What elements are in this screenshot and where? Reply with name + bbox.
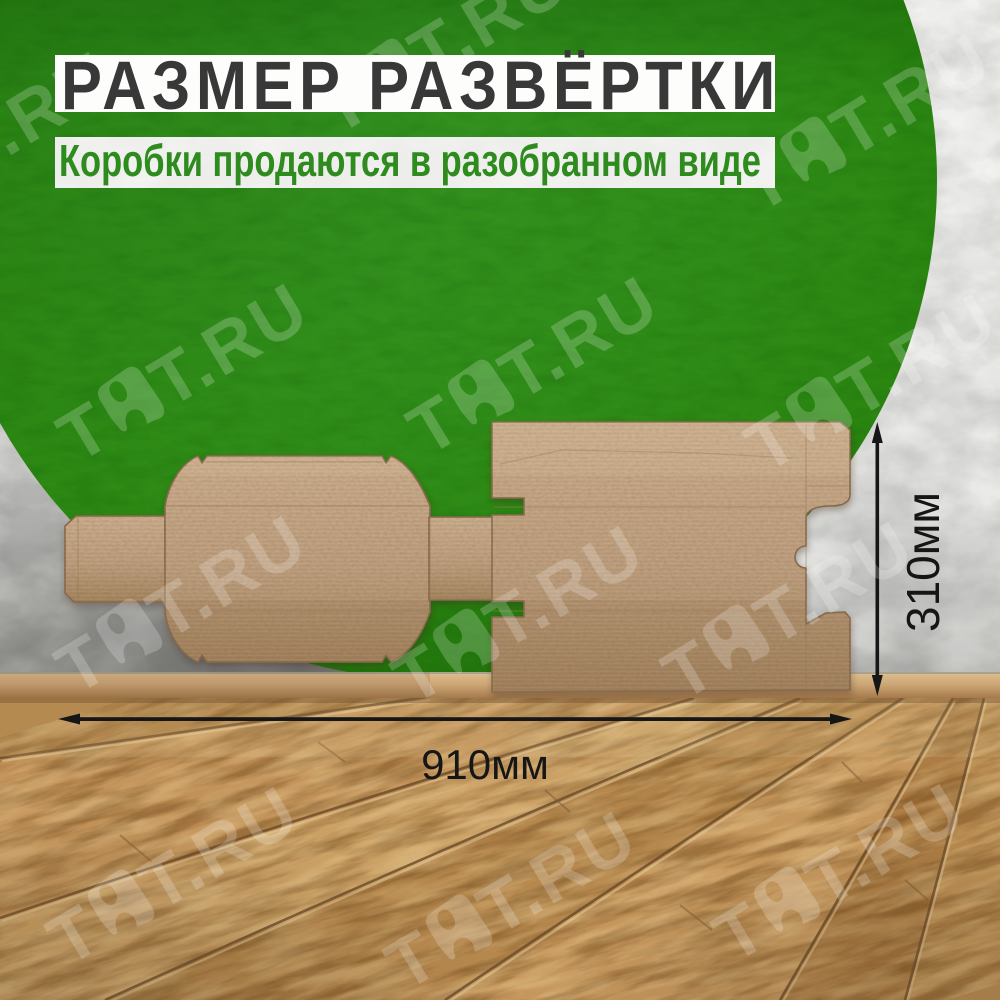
svg-text:910мм: 910мм — [421, 741, 549, 788]
svg-text:РАЗМЕР РАЗВЁРТКИ: РАЗМЕР РАЗВЁРТКИ — [61, 47, 781, 124]
svg-text:Коробки продаются в разобранно: Коробки продаются в разобранном виде — [59, 135, 761, 186]
